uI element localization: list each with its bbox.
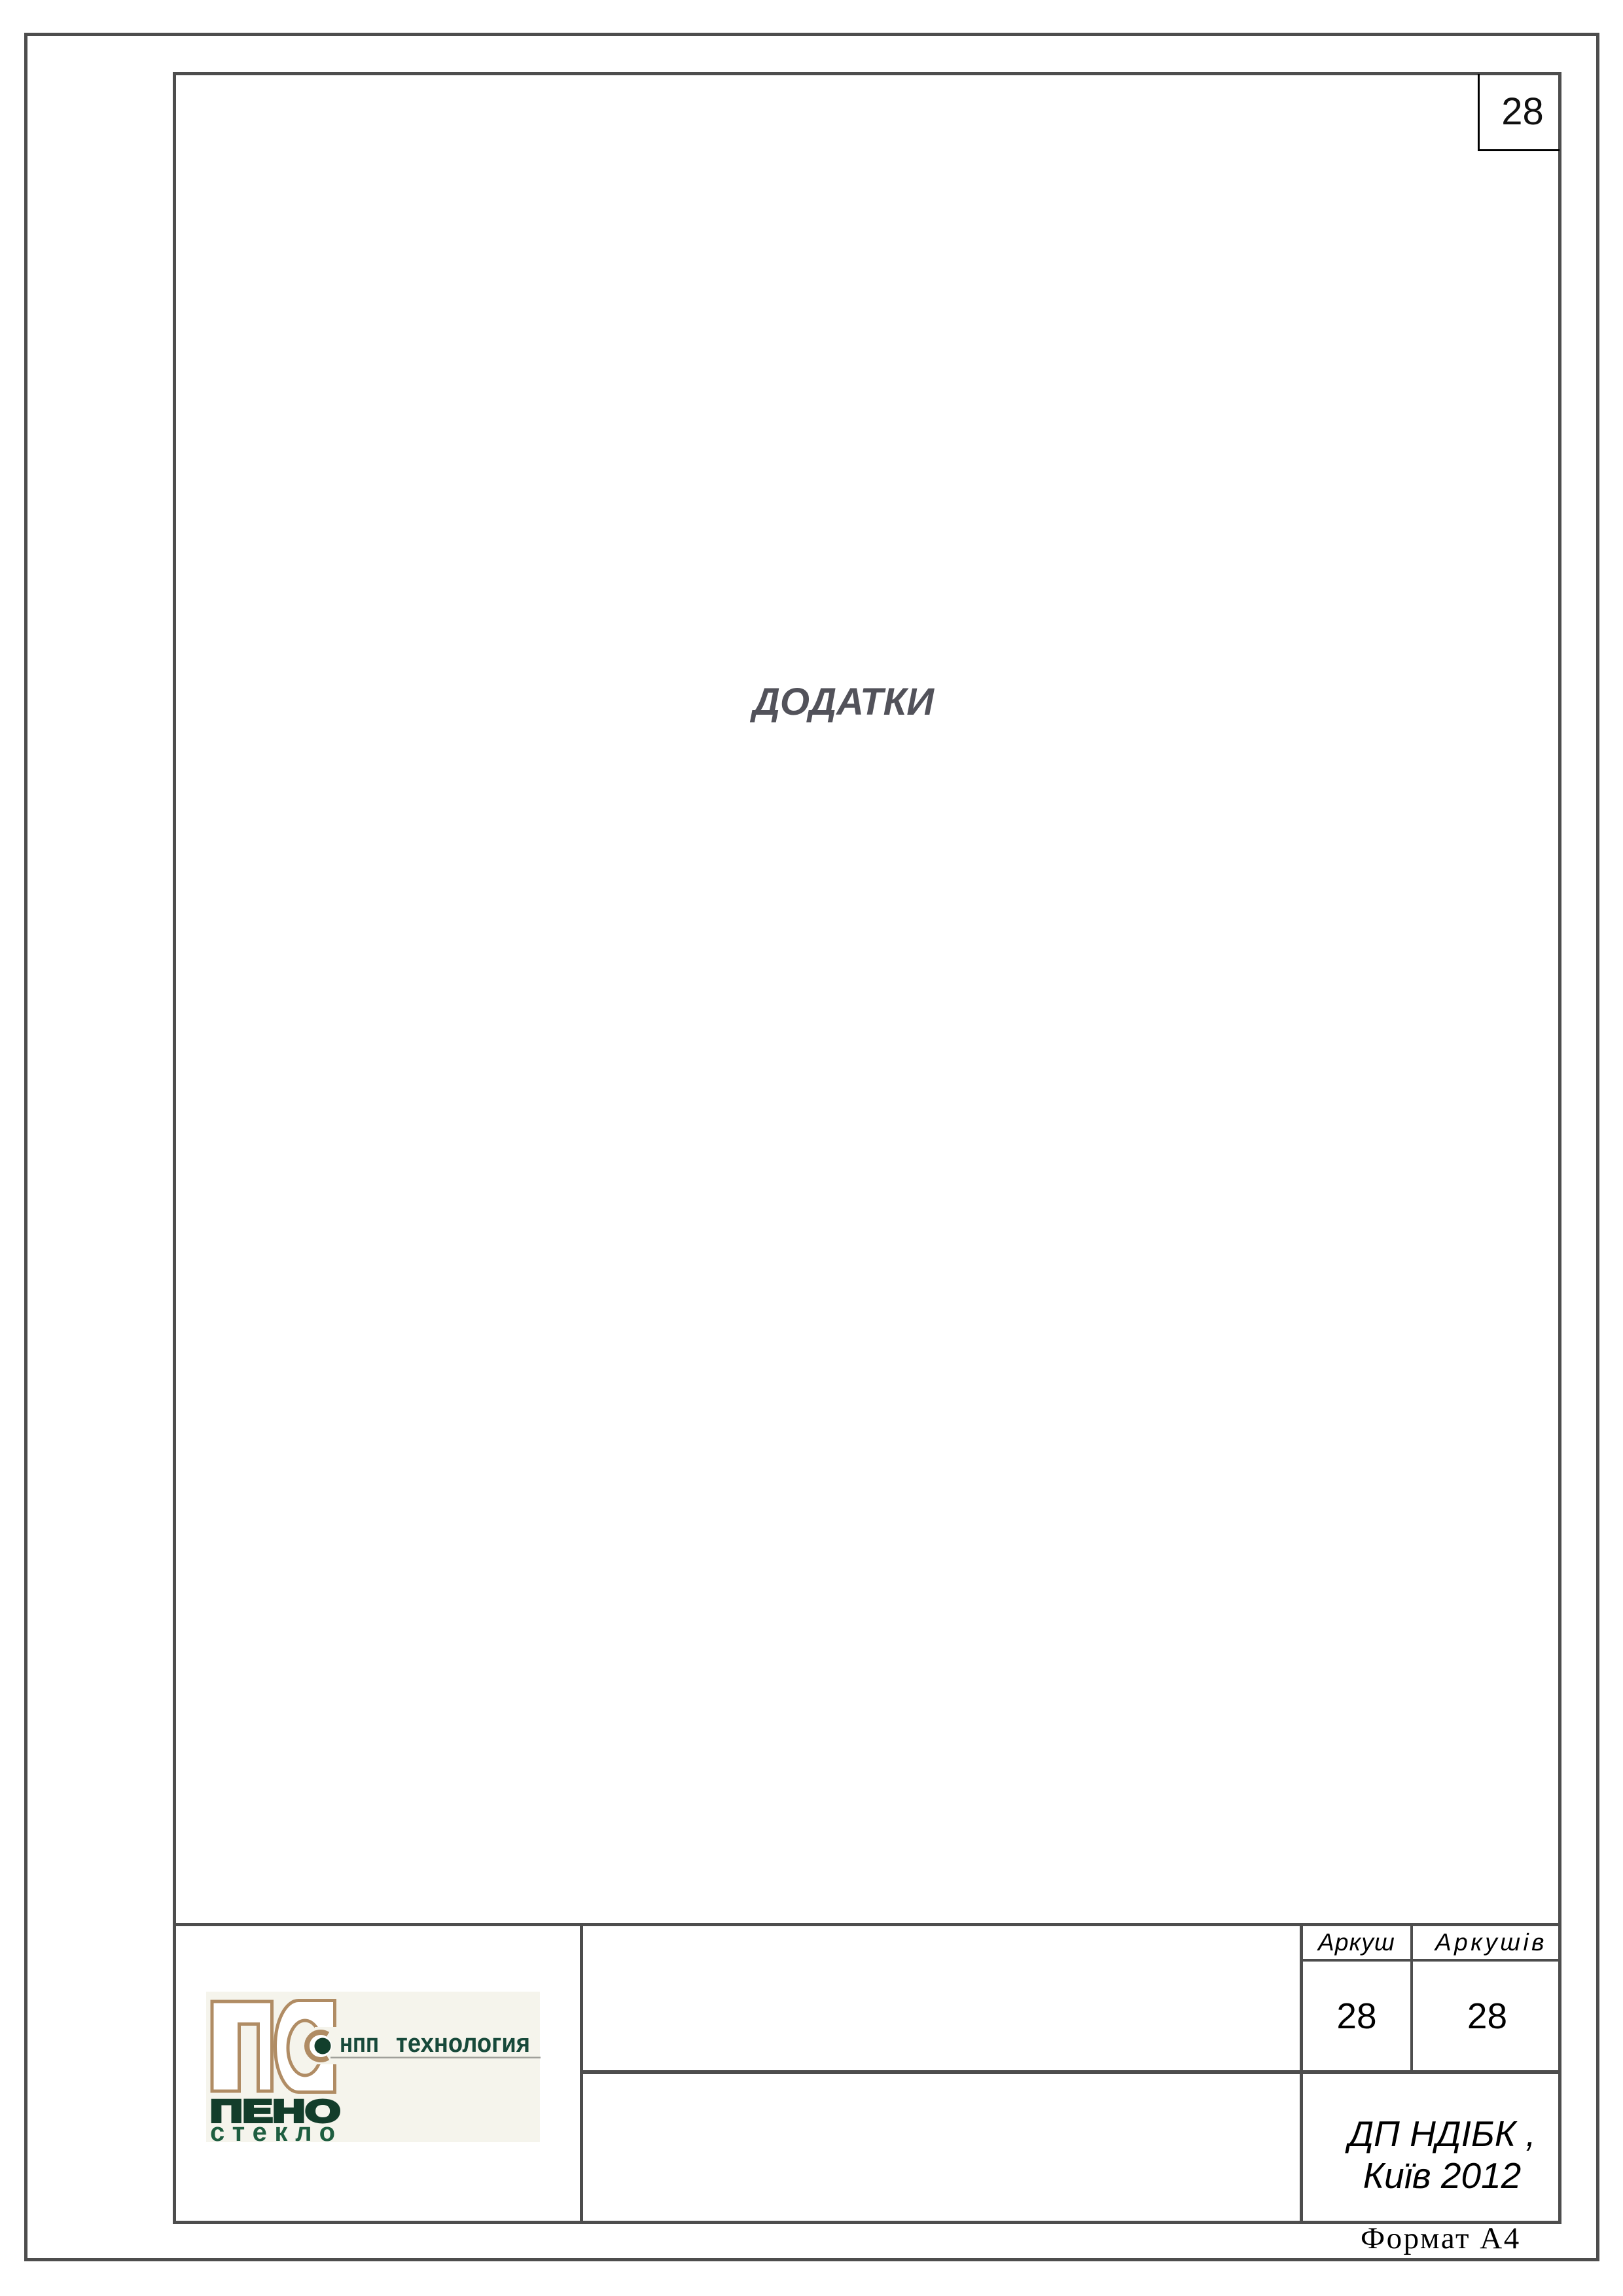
svg-text:технология: технология xyxy=(396,2029,530,2058)
svg-text:нпп: нпп xyxy=(340,2029,379,2058)
